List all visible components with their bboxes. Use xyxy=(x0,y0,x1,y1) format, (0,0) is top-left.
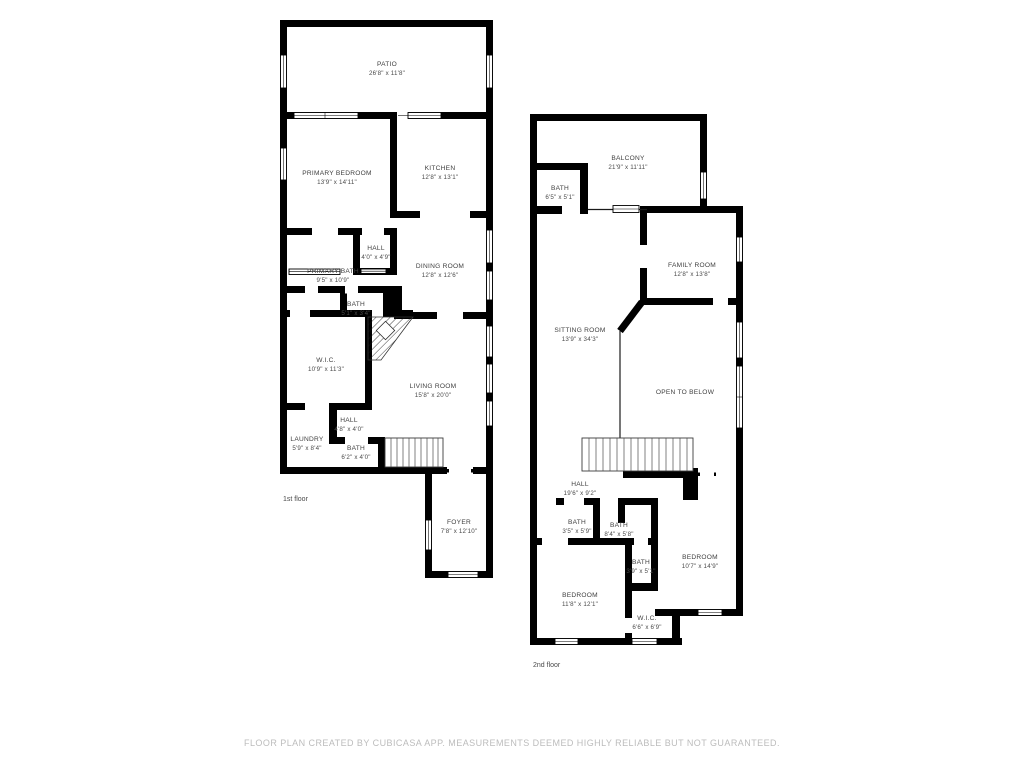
room-label: LIVING ROOM xyxy=(410,383,457,390)
room-label: BATH xyxy=(568,519,586,526)
room-label: BATH xyxy=(632,559,650,566)
room-dims: 10'7" x 14'9" xyxy=(682,563,719,570)
room-label: BATH xyxy=(347,445,365,452)
room-label: PRIMARY BEDROOM xyxy=(302,170,371,177)
room-dims: 6'5" x 5'1" xyxy=(545,194,574,201)
room-label: FAMILY ROOM xyxy=(668,262,716,269)
room-dims: 8'4" x 5'8" xyxy=(604,531,633,538)
window xyxy=(426,520,432,550)
room-dims: 15'8" x 20'0" xyxy=(415,392,452,399)
window xyxy=(698,610,722,616)
room-label: BATH xyxy=(347,301,365,308)
room-dims: 13'9" x 34'3" xyxy=(562,336,599,343)
floor1-caption: 1st floor xyxy=(283,496,309,503)
room-dims: 12'8" x 13'1" xyxy=(422,174,459,181)
room-dims: 26'8" x 11'8" xyxy=(369,70,405,77)
room-dims: 9'5" x 10'9" xyxy=(317,277,350,284)
floor-plan-page: PATIO 26'8" x 11'8" PRIMARY BEDROOM 13'9… xyxy=(0,0,1024,768)
room-label: W.I.C. xyxy=(637,615,656,622)
f1-walls xyxy=(280,20,493,578)
room-label: BEDROOM xyxy=(562,592,598,599)
room-label: BATH xyxy=(551,185,569,192)
room-label: PATIO xyxy=(377,61,397,68)
window xyxy=(281,55,287,88)
room-dims: 12'8" x 13'8" xyxy=(674,271,711,278)
window xyxy=(487,230,493,263)
window xyxy=(408,113,441,119)
room-dims: 3'9" x 5'1" xyxy=(626,568,655,575)
room-dims: 11'8" x 12'1" xyxy=(562,601,598,608)
second-floor-plan: BALCONY 21'9" x 11'11" BATH 6'5" x 5'1" … xyxy=(530,114,743,669)
room-dims: 13'9" x 14'11" xyxy=(317,179,357,186)
room-dims: 6'6" x 6'9" xyxy=(632,624,661,631)
room-dims: 5'1" x 3'4" xyxy=(341,310,370,317)
room-dims: 10'9" x 11'3" xyxy=(308,366,344,373)
window xyxy=(487,55,493,88)
room-label: HALL xyxy=(340,417,358,424)
first-floor-plan: PATIO 26'8" x 11'8" PRIMARY BEDROOM 13'9… xyxy=(280,20,493,578)
disclaimer-text: FLOOR PLAN CREATED BY CUBICASA APP. MEAS… xyxy=(244,738,780,748)
room-label: BATH xyxy=(610,522,628,529)
room-label: DINING ROOM xyxy=(416,263,464,270)
window xyxy=(555,639,578,645)
room-label: BALCONY xyxy=(611,155,645,162)
window xyxy=(737,322,743,358)
f2-straight-stairs xyxy=(582,438,693,471)
window xyxy=(632,639,657,645)
room-dims: 12'8" x 12'6" xyxy=(422,272,459,279)
room-dims: 5'9" x 8'4" xyxy=(292,445,321,452)
room-label: FOYER xyxy=(447,519,471,526)
f1-straight-stairs xyxy=(385,438,443,467)
window xyxy=(737,366,743,428)
window xyxy=(281,148,287,180)
room-label: HALL xyxy=(367,245,385,252)
room-dims: 4'0" x 4'9" xyxy=(361,254,390,261)
room-label: W.I.C. xyxy=(316,357,335,364)
room-dims: 6'2" x 4'0" xyxy=(341,454,370,461)
room-dims: 19'6" x 9'2" xyxy=(564,490,597,497)
window xyxy=(613,206,639,213)
room-dims: 7'8" x 12'10" xyxy=(441,528,478,535)
window xyxy=(701,172,707,199)
room-label: OPEN TO BELOW xyxy=(656,389,715,396)
room-label: SITTING ROOM xyxy=(554,327,605,334)
window xyxy=(294,113,358,119)
window xyxy=(487,326,493,357)
window xyxy=(487,271,493,300)
room-label: HALL xyxy=(571,481,589,488)
window xyxy=(737,237,743,262)
room-dims: 4'8" x 4'0" xyxy=(334,426,363,433)
floor-plan-canvas: PATIO 26'8" x 11'8" PRIMARY BEDROOM 13'9… xyxy=(0,0,1024,768)
f1-winder-stairs xyxy=(368,317,413,360)
glass-door xyxy=(361,269,386,274)
window xyxy=(448,572,478,578)
floor2-caption: 2nd floor xyxy=(533,662,561,669)
room-label: PRIMARY BATH xyxy=(307,268,359,275)
room-label: LAUNDRY xyxy=(290,436,323,443)
room-label: KITCHEN xyxy=(425,165,456,172)
room-dims: 3'5" x 5'9" xyxy=(562,528,591,535)
window xyxy=(487,364,493,393)
room-label: BEDROOM xyxy=(682,554,718,561)
room-dims: 21'9" x 11'11" xyxy=(608,164,647,171)
window xyxy=(487,401,493,426)
